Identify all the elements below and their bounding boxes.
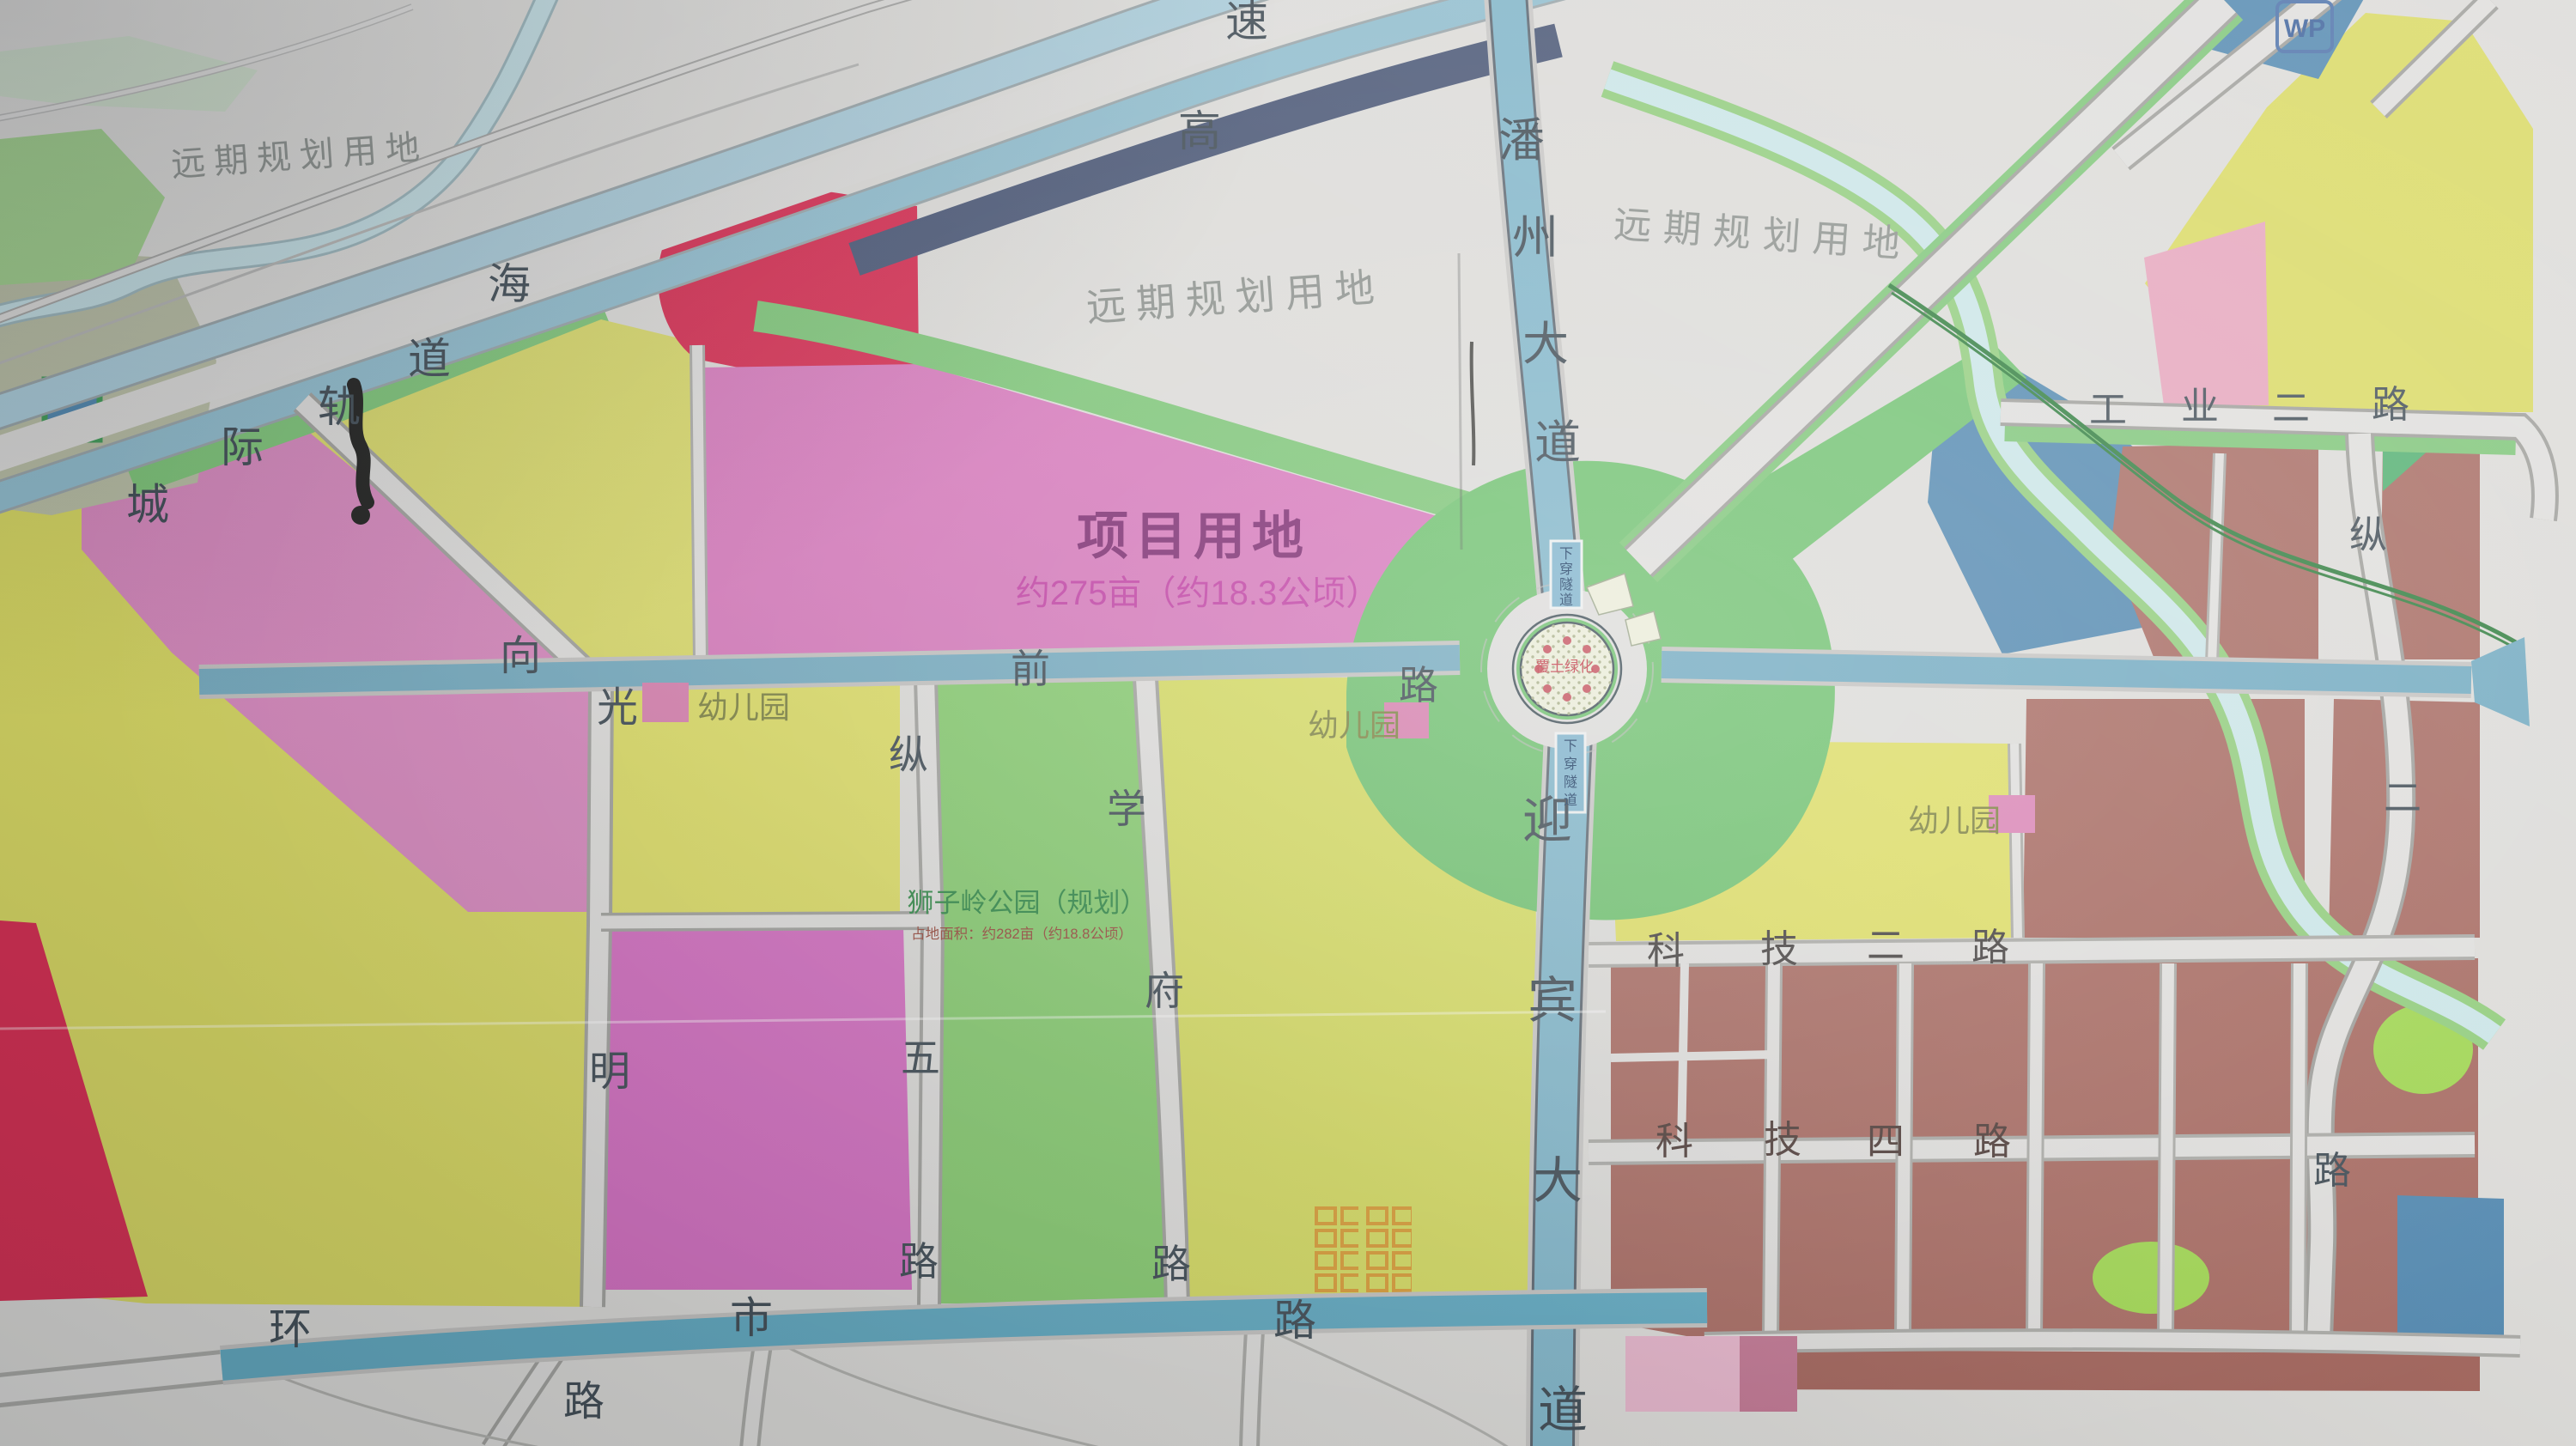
planning-map-photo: 远期规划用地 远期规划用地 远期规划用地 项目用地 约275亩（约18.3公顷）… bbox=[0, 0, 2576, 1446]
photo-vignette bbox=[0, 0, 2576, 1446]
map-canvas: 远期规划用地 远期规划用地 远期规划用地 项目用地 约275亩（约18.3公顷）… bbox=[0, 0, 2576, 1446]
